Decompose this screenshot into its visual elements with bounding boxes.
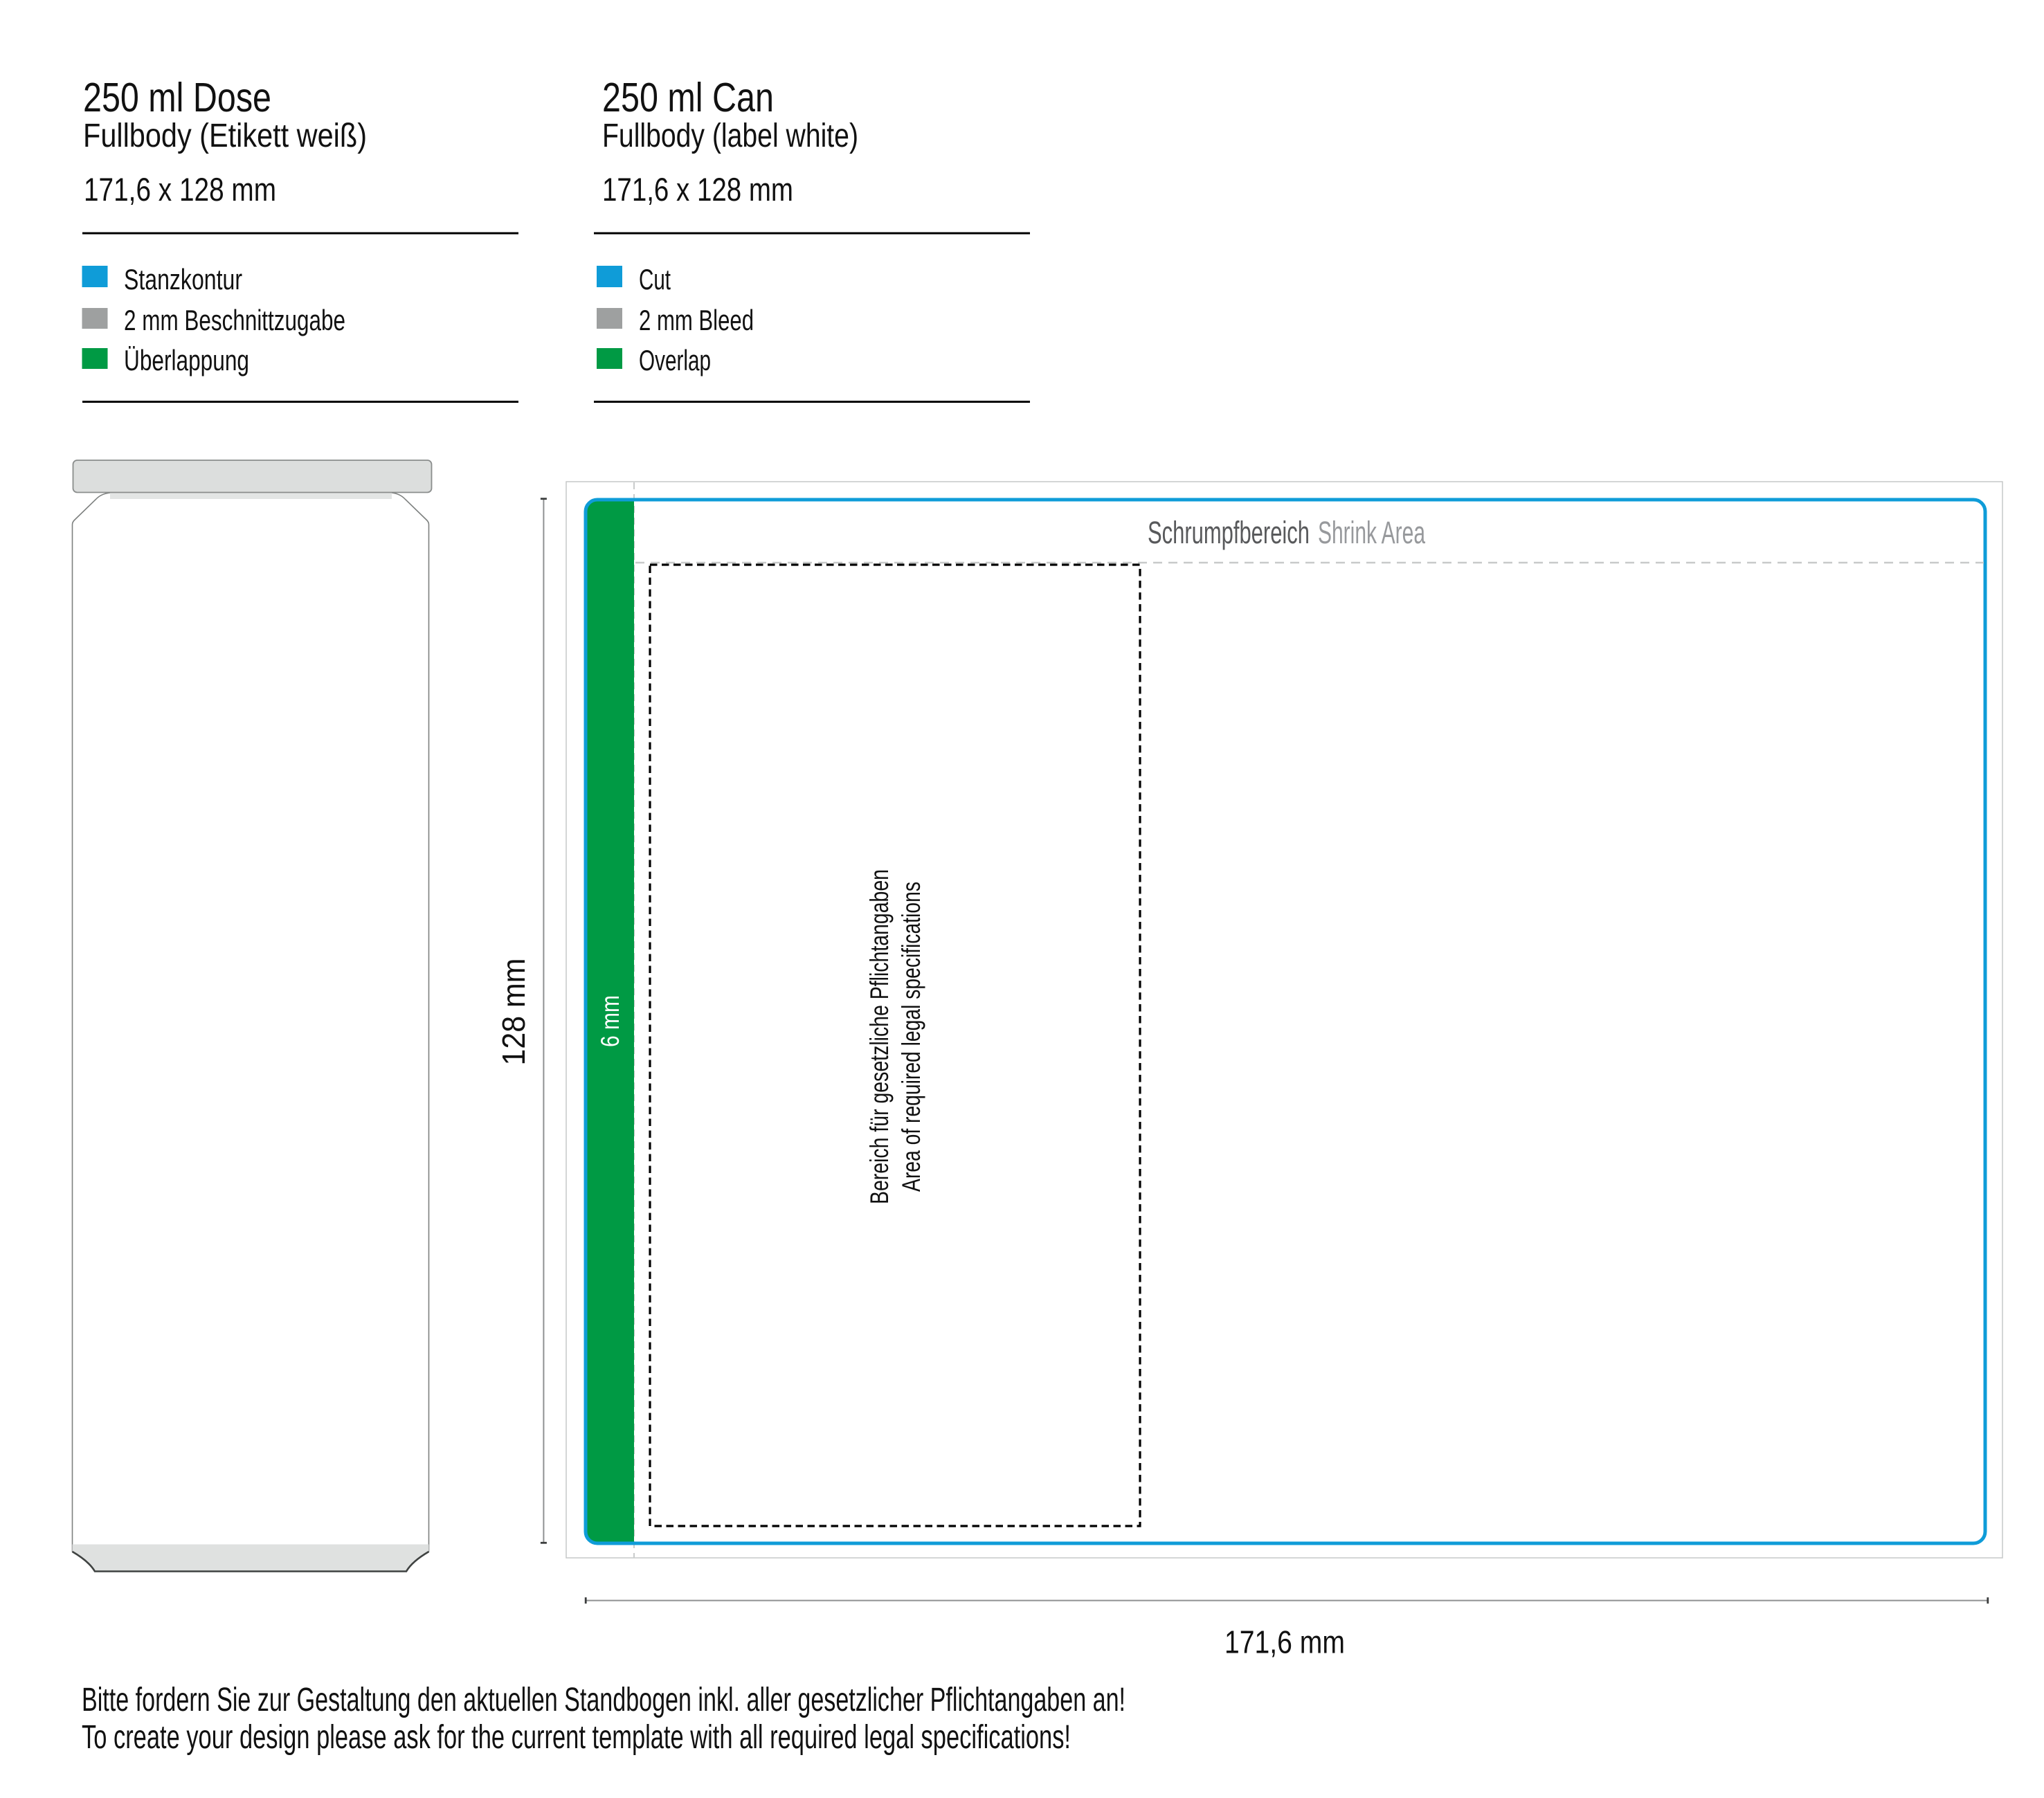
svg-text:Fullbody (Etikett weiß): Fullbody (Etikett weiß) bbox=[83, 118, 367, 154]
svg-text:Schrumpfbereich: Schrumpfbereich bbox=[1148, 515, 1310, 550]
svg-text:171,6 x 128 mm: 171,6 x 128 mm bbox=[84, 171, 276, 208]
svg-text:Cut: Cut bbox=[639, 263, 671, 296]
svg-text:2 mm Bleed: 2 mm Bleed bbox=[639, 304, 754, 336]
svg-text:Bitte fordern Sie zur Gestaltu: Bitte fordern Sie zur Gestaltung den akt… bbox=[82, 1682, 1125, 1718]
svg-text:250 ml Dose: 250 ml Dose bbox=[83, 75, 271, 120]
svg-text:171,6 mm: 171,6 mm bbox=[1224, 1624, 1345, 1660]
svg-text:2 mm Beschnittzugabe: 2 mm Beschnittzugabe bbox=[124, 304, 345, 336]
svg-text:250 ml Can: 250 ml Can bbox=[602, 75, 774, 120]
svg-text:128 mm: 128 mm bbox=[496, 959, 532, 1066]
svg-text:To create your design please a: To create your design please ask for the… bbox=[82, 1719, 1071, 1756]
svg-text:Stanzkontur: Stanzkontur bbox=[124, 263, 242, 296]
svg-text:Shrink Area: Shrink Area bbox=[1318, 515, 1426, 550]
svg-text:Area of required legal specifi: Area of required legal specifications bbox=[897, 882, 925, 1192]
svg-text:171,6 x 128 mm: 171,6 x 128 mm bbox=[602, 171, 793, 208]
svg-text:6 mm: 6 mm bbox=[596, 995, 624, 1047]
svg-text:Overlap: Overlap bbox=[639, 344, 711, 376]
svg-text:Überlappung: Überlappung bbox=[124, 344, 249, 376]
svg-text:Bereich für gesetzliche Pflich: Bereich für gesetzliche Pflichtangaben bbox=[865, 869, 894, 1204]
svg-text:Fullbody (label white): Fullbody (label white) bbox=[602, 118, 858, 154]
